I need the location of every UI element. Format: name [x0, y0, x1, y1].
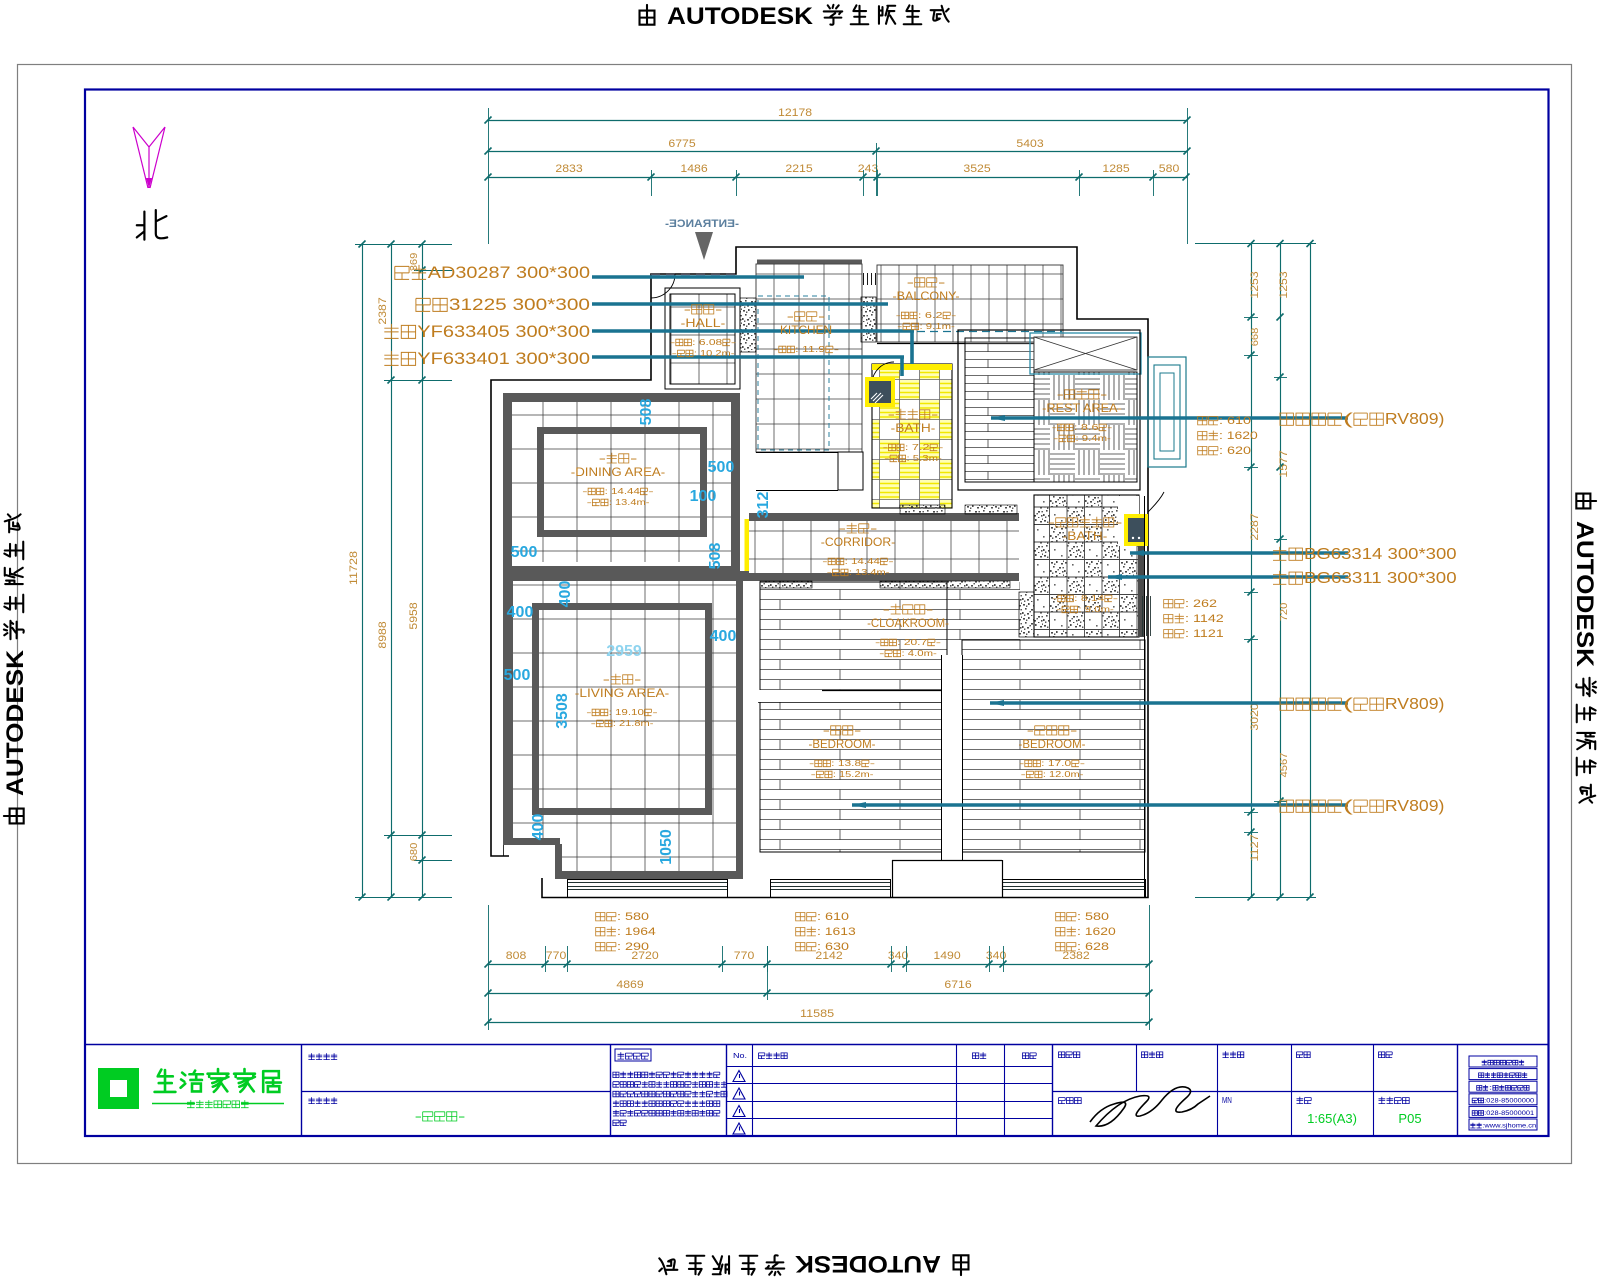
svg-text:2215: 2215: [785, 163, 812, 175]
svg-text:-: -: [875, 637, 881, 647]
svg-text:: 580: : 580: [617, 911, 649, 923]
svg-text:: 13.8: : 13.8: [831, 758, 861, 768]
svg-text:: 1620: : 1620: [1077, 926, 1116, 938]
svg-text:-BEDROOM-: -BEDROOM-: [809, 737, 876, 751]
svg-text:11728: 11728: [348, 551, 360, 585]
svg-text:: 1142: : 1142: [1185, 613, 1224, 625]
svg-text:YF633401 300*300: YF633401 300*300: [417, 349, 590, 368]
svg-text:: 1620: : 1620: [1219, 430, 1258, 442]
svg-text:RV809): RV809): [1385, 798, 1445, 815]
svg-text:-: -: [936, 637, 942, 647]
svg-text:1285: 1285: [1102, 163, 1129, 175]
svg-text:508: 508: [638, 399, 655, 426]
svg-text:-: -: [599, 451, 606, 465]
svg-text:400: 400: [710, 628, 737, 645]
svg-text:500: 500: [708, 459, 735, 476]
svg-text:: 15.2m-: : 15.2m-: [833, 769, 874, 779]
svg-text:-DINING AREA-: -DINING AREA-: [571, 465, 665, 479]
svg-text::028-85000001: :028-85000001: [1484, 1110, 1535, 1117]
svg-text:1490: 1490: [933, 950, 960, 962]
svg-text:: 11.9: : 11.9: [795, 344, 825, 354]
svg-text:-: -: [938, 442, 944, 452]
svg-text:: 6.2: : 6.2: [918, 310, 943, 320]
svg-text:(: (: [1343, 696, 1354, 713]
svg-text:770: 770: [546, 950, 567, 962]
svg-text:-: -: [818, 309, 825, 323]
svg-text:-: -: [888, 556, 894, 566]
svg-text::www.sjhome.cn: :www.sjhome.cn: [1482, 1123, 1536, 1130]
svg-text:-: -: [888, 407, 895, 421]
svg-text:2833: 2833: [555, 163, 582, 175]
svg-text:-: -: [586, 707, 592, 717]
svg-text:RV809): RV809): [1385, 696, 1445, 713]
svg-text:: 290: : 290: [617, 941, 649, 953]
svg-text:MN: MN: [1222, 1096, 1232, 1105]
svg-text:KITCHEN: KITCHEN: [780, 323, 832, 337]
svg-text:: 8.6: : 8.6: [1074, 422, 1099, 432]
svg-text:-: -: [883, 442, 889, 452]
svg-text:-: -: [458, 1109, 465, 1123]
svg-text:: 628: : 628: [1077, 941, 1109, 953]
svg-text:: 9.4m-: : 9.4m-: [1076, 433, 1112, 443]
svg-text:BG63311 300*300: BG63311 300*300: [1304, 570, 1457, 587]
svg-text:: 19.10: : 19.10: [609, 707, 645, 717]
svg-text:720: 720: [1279, 602, 1290, 621]
svg-text:400: 400: [507, 604, 534, 621]
svg-text:-LIVING AREA-: -LIVING AREA-: [575, 686, 669, 700]
svg-text:No.: No.: [733, 1051, 747, 1060]
svg-text:: 1964: : 1964: [617, 926, 656, 938]
svg-text:: 630: : 630: [817, 941, 849, 953]
svg-text:-: -: [931, 407, 938, 421]
svg-text:1050: 1050: [658, 829, 675, 865]
svg-text:400: 400: [530, 814, 547, 841]
svg-text:-: -: [648, 486, 654, 496]
svg-text:: 7.2: : 7.2: [905, 442, 930, 452]
svg-text:-: -: [731, 337, 737, 347]
svg-text:312: 312: [755, 492, 772, 519]
svg-text:3508: 3508: [554, 693, 571, 729]
svg-text:-HALL-: -HALL-: [681, 316, 726, 330]
svg-text:-: -: [1052, 593, 1058, 603]
svg-text:-BALCONY-: -BALCONY-: [893, 289, 960, 303]
svg-text:AUTODESK: AUTODESK: [667, 3, 814, 30]
svg-text:6716: 6716: [944, 979, 971, 991]
svg-text:: 4.0m-: : 4.0m-: [902, 648, 938, 658]
svg-text:-CORRIDOR-: -CORRIDOR-: [821, 535, 895, 549]
svg-text:1253: 1253: [1249, 271, 1261, 298]
svg-text:: 580: : 580: [1077, 911, 1109, 923]
svg-text:-: -: [1070, 723, 1077, 737]
svg-text:: 610: : 610: [1219, 415, 1251, 427]
svg-text:(: (: [1343, 411, 1354, 428]
svg-text:-: -: [870, 758, 876, 768]
svg-text:: 1121: : 1121: [1185, 628, 1224, 640]
svg-text:-: -: [827, 567, 833, 577]
svg-text:3020: 3020: [1249, 703, 1261, 730]
svg-text:P05: P05: [1398, 1111, 1421, 1126]
svg-text:-: -: [938, 275, 945, 289]
svg-text:-: -: [587, 497, 593, 507]
svg-text:YF633405 300*300: YF633405 300*300: [417, 322, 590, 341]
svg-text:-: -: [809, 758, 815, 768]
svg-text:11585: 11585: [800, 1008, 834, 1020]
svg-text:-BATH-: -BATH-: [1063, 529, 1108, 543]
svg-text:: 262: : 262: [1185, 598, 1217, 610]
svg-text:: 17.0: : 17.0: [1041, 758, 1071, 768]
svg-text:369: 369: [409, 252, 420, 271]
svg-text:243: 243: [858, 163, 879, 175]
svg-text:-: -: [652, 707, 658, 717]
svg-text:: 21.8m-: : 21.8m-: [613, 718, 654, 728]
svg-text:-: -: [1057, 387, 1064, 401]
svg-text:1486: 1486: [680, 163, 707, 175]
svg-text:-: -: [897, 321, 903, 331]
svg-text:-REST AREA-: -REST AREA-: [1042, 401, 1122, 415]
svg-text:5403: 5403: [1016, 138, 1043, 150]
svg-text:808: 808: [506, 950, 527, 962]
svg-text:580: 580: [1159, 163, 1180, 175]
svg-text:-: -: [811, 769, 817, 779]
svg-text:-: -: [1107, 422, 1113, 432]
svg-text:-: -: [879, 648, 885, 658]
svg-text:-: -: [870, 521, 877, 535]
svg-text:-: -: [823, 723, 830, 737]
svg-text:AUTODESK: AUTODESK: [794, 1250, 941, 1277]
svg-text:: 14.44: : 14.44: [845, 556, 881, 566]
svg-text:508: 508: [707, 543, 724, 570]
svg-text:-: -: [883, 602, 890, 616]
svg-text:BG63314 300*300: BG63314 300*300: [1304, 546, 1457, 563]
svg-text:1127: 1127: [1249, 834, 1261, 861]
svg-text:-: -: [684, 302, 691, 316]
svg-text:-: -: [773, 344, 779, 354]
svg-text::028-85000000: :028-85000000: [1484, 1097, 1535, 1104]
svg-text:-: -: [715, 302, 722, 316]
svg-text:1577: 1577: [1278, 450, 1290, 477]
svg-text:12178: 12178: [778, 107, 812, 119]
svg-text:: 20.7: : 20.7: [897, 637, 927, 647]
svg-text:500: 500: [504, 667, 531, 684]
svg-text:AUTODESK: AUTODESK: [1571, 521, 1598, 668]
svg-text:8988: 8988: [377, 621, 389, 648]
svg-text:: 8.14: : 8.14: [1074, 593, 1104, 603]
svg-text:-: -: [907, 275, 914, 289]
svg-text:31225 300*300: 31225 300*300: [449, 295, 590, 314]
svg-text:-: -: [834, 344, 840, 354]
svg-text:: 13.4m-: : 13.4m-: [609, 497, 650, 507]
svg-text:-CLOAKROOM-: -CLOAKROOM-: [867, 616, 949, 630]
svg-text:: 5.3m-: : 5.3m-: [907, 453, 943, 463]
svg-text:-BATH-: -BATH-: [891, 421, 936, 435]
svg-text:5958: 5958: [408, 602, 420, 629]
svg-text:-: -: [839, 521, 846, 535]
svg-text:-: -: [630, 451, 637, 465]
svg-text:: 610: : 610: [817, 911, 849, 923]
svg-text:AUTODESK: AUTODESK: [2, 649, 29, 796]
svg-text:2387: 2387: [377, 297, 389, 324]
svg-text:-: -: [415, 1109, 422, 1123]
svg-text:: 9.1m-: : 9.1m-: [920, 321, 956, 331]
svg-text:: 620: : 620: [1219, 445, 1251, 457]
svg-text:: 1613: : 1613: [817, 926, 856, 938]
svg-text:-: -: [1021, 769, 1027, 779]
svg-text:-: -: [634, 672, 641, 686]
svg-text:3525: 3525: [963, 163, 990, 175]
svg-text:668: 668: [1250, 327, 1261, 346]
svg-text:2287: 2287: [1249, 513, 1261, 540]
svg-text:-: -: [951, 310, 957, 320]
svg-text:-: -: [591, 718, 597, 728]
svg-text:-ENTRANCE-: -ENTRANCE-: [665, 218, 739, 230]
svg-text:RV809): RV809): [1385, 411, 1445, 428]
svg-text:100: 100: [690, 488, 717, 505]
svg-text:4567: 4567: [1279, 752, 1290, 777]
svg-text:500: 500: [511, 544, 538, 561]
svg-text:-: -: [582, 486, 588, 496]
svg-text:-: -: [884, 453, 890, 463]
svg-text:6775: 6775: [668, 138, 695, 150]
svg-text:1:65(A3): 1:65(A3): [1307, 1111, 1357, 1126]
svg-text:: 10.2m-: : 10.2m-: [694, 348, 735, 358]
svg-text:(: (: [1343, 798, 1354, 815]
svg-text:-: -: [854, 723, 861, 737]
svg-text:-: -: [822, 556, 828, 566]
svg-text:: 9.0m-: : 9.0m-: [1079, 604, 1115, 614]
svg-text:-: -: [1053, 433, 1059, 443]
svg-text:340: 340: [888, 950, 909, 962]
svg-text:-: -: [896, 310, 902, 320]
svg-text:-: -: [1027, 723, 1034, 737]
svg-text:770: 770: [734, 950, 755, 962]
svg-text:AD30287 300*300: AD30287 300*300: [428, 263, 590, 282]
svg-text:1253: 1253: [1278, 271, 1290, 298]
svg-text:-: -: [787, 309, 794, 323]
svg-text:-: -: [670, 337, 676, 347]
svg-text:-: -: [926, 602, 933, 616]
svg-text:-: -: [603, 672, 610, 686]
svg-text:-BEDROOM-: -BEDROOM-: [1019, 737, 1086, 751]
svg-text:-: -: [1100, 387, 1107, 401]
svg-text::: :: [1489, 1085, 1493, 1092]
svg-text:-: -: [1019, 758, 1025, 768]
svg-text:4869: 4869: [616, 979, 643, 991]
svg-text:-: -: [672, 348, 678, 358]
svg-text:: 12.0m-: : 12.0m-: [1043, 769, 1084, 779]
svg-text:400: 400: [557, 581, 574, 608]
svg-text:: 6.08: : 6.08: [692, 337, 722, 347]
svg-text:2959: 2959: [606, 643, 642, 660]
svg-text:: 14.44: : 14.44: [605, 486, 641, 496]
svg-text:: 13.4m-: : 13.4m-: [849, 567, 890, 577]
svg-text:-: -: [1052, 422, 1058, 432]
svg-text:680: 680: [409, 842, 420, 861]
svg-text:-: -: [1115, 515, 1122, 529]
svg-text:-: -: [1048, 515, 1055, 529]
svg-text:-: -: [1080, 758, 1086, 768]
svg-text:-: -: [1056, 604, 1062, 614]
svg-text:-: -: [1113, 593, 1119, 603]
